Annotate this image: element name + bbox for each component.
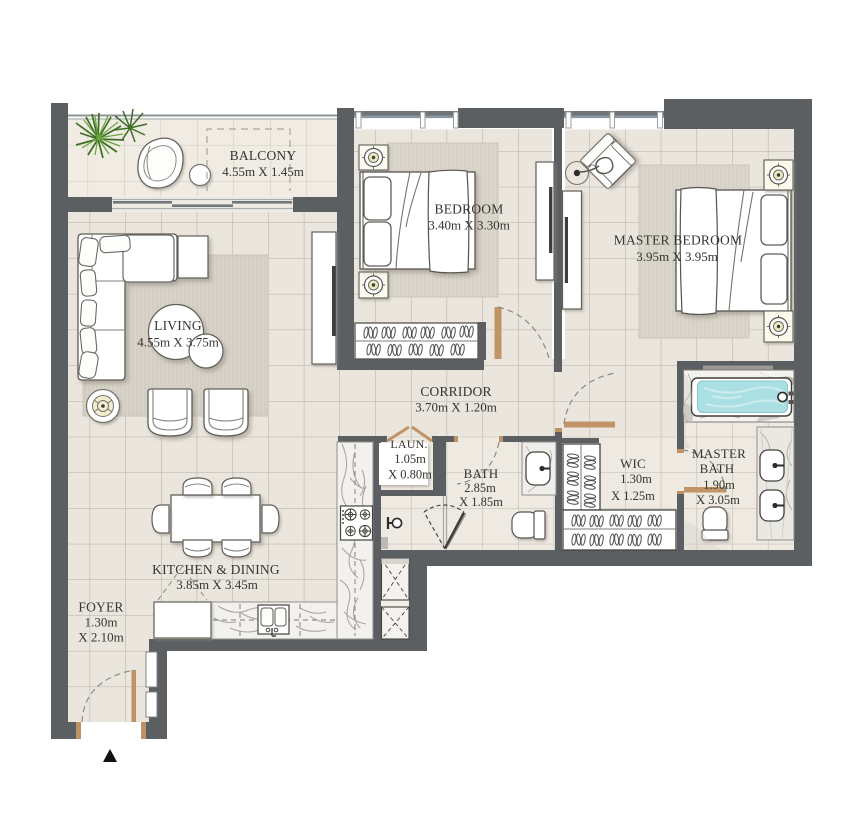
svg-text:LIVING: LIVING: [154, 318, 202, 333]
svg-text:MASTER BEDROOM: MASTER BEDROOM: [614, 233, 742, 248]
svg-text:2.85m: 2.85m: [464, 481, 496, 495]
svg-text:CORRIDOR: CORRIDOR: [420, 384, 491, 399]
svg-text:1.05m: 1.05m: [394, 452, 426, 466]
svg-text:1.30m: 1.30m: [85, 615, 118, 630]
svg-text:3.85m X 3.45m: 3.85m X 3.45m: [176, 577, 258, 592]
svg-text:KITCHEN & DINING: KITCHEN & DINING: [152, 562, 280, 577]
svg-text:BATH: BATH: [464, 466, 499, 481]
svg-text:LAUN.: LAUN.: [390, 437, 427, 451]
svg-text:3.95m X 3.95m: 3.95m X 3.95m: [636, 249, 718, 264]
svg-text:4.55m X 1.45m: 4.55m X 1.45m: [222, 164, 304, 179]
svg-text:3.70m X 1.20m: 3.70m X 1.20m: [415, 400, 497, 415]
svg-text:BALCONY: BALCONY: [230, 148, 297, 163]
svg-text:4.55m X 3.75m: 4.55m X 3.75m: [137, 335, 219, 350]
svg-text:WIC: WIC: [620, 456, 646, 471]
svg-text:X 1.85m: X 1.85m: [459, 495, 503, 509]
svg-text:BEDROOM: BEDROOM: [435, 202, 504, 217]
svg-text:BATH: BATH: [700, 461, 735, 476]
svg-text:3.40m X 3.30m: 3.40m X 3.30m: [428, 218, 510, 233]
svg-text:X 1.25m: X 1.25m: [611, 489, 655, 503]
svg-text:FOYER: FOYER: [78, 600, 123, 615]
svg-text:1.30m: 1.30m: [620, 472, 652, 486]
svg-text:X 3.05m: X 3.05m: [696, 493, 740, 507]
svg-text:X 2.10m: X 2.10m: [78, 630, 124, 645]
svg-text:1.90m: 1.90m: [703, 478, 735, 492]
svg-text:X 0.80m: X 0.80m: [388, 468, 432, 482]
svg-text:MASTER: MASTER: [692, 446, 746, 461]
